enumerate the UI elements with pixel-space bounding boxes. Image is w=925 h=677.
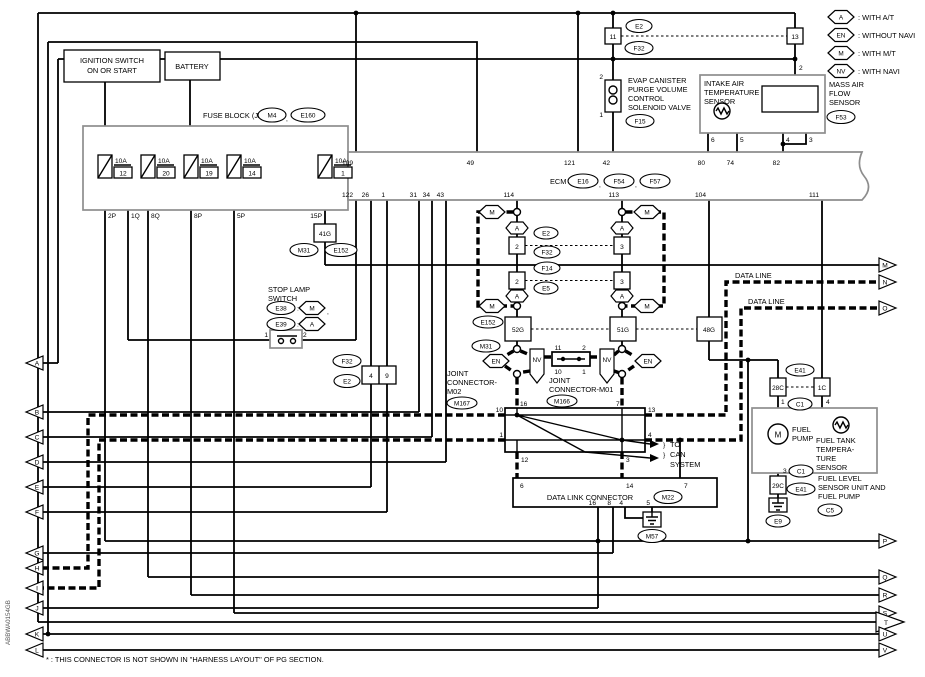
ecm-pin-113: 113	[608, 192, 619, 199]
tank-name-2: TEMPERA-	[816, 445, 855, 454]
connector-e2-chain: E2	[542, 231, 550, 238]
jc2-pin-3: 3	[626, 457, 630, 464]
arrow-left-d: D	[26, 455, 43, 469]
jc2-pin-4: 4	[648, 432, 652, 439]
arrow-left-j: J	[26, 601, 43, 615]
can-chain-right: M M A A 3 3 51G 48G EN NV	[531, 206, 722, 384]
jc2-name-2: CONNECTOR-	[447, 378, 497, 387]
badge-en: EN	[492, 359, 501, 366]
jc2-pin-12: 12	[521, 457, 529, 464]
svg-text:I: I	[36, 586, 38, 593]
evap-name-4: SOLENOID VALVE	[628, 103, 691, 112]
maf-name-2: FLOW	[829, 89, 850, 98]
arrow-left-e: E	[26, 480, 43, 494]
connector-e152-chain: E152	[481, 320, 496, 327]
inline-pin-4: 4	[369, 373, 373, 380]
svg-text:K: K	[35, 632, 40, 639]
arrow-right-r: R	[879, 588, 896, 602]
legend-text-en: : WITHOUT NAVI	[858, 31, 915, 40]
ground-m57: M57	[638, 512, 666, 543]
jc1-pin-1: 1	[582, 369, 586, 376]
arrow-left-f: F	[26, 505, 43, 519]
evap-name-3: CONTROL	[628, 94, 664, 103]
fuel-pump-name-1: FUEL	[792, 425, 811, 434]
arrow-left-c: C	[26, 430, 43, 444]
badge-nv: NV	[603, 357, 613, 364]
dlc-pin-6: 6	[520, 483, 524, 490]
svg-text:M: M	[775, 431, 782, 440]
arrow-left-g: G	[26, 546, 43, 560]
fuel-unit-name-3: FUEL PUMP	[818, 492, 860, 501]
svg-text:T: T	[884, 620, 888, 627]
ignition-label-1: IGNITION SWITCH	[80, 56, 144, 65]
iat-name-2: TEMPERATURE	[704, 88, 759, 97]
svg-text:Q: Q	[882, 575, 887, 582]
pin-1q: 1Q	[131, 213, 140, 220]
colon: :	[297, 306, 299, 313]
ecm-pin-109: 109	[342, 160, 353, 167]
ecm-pin-34: 34	[423, 192, 431, 199]
ecm-pin-74: 74	[727, 160, 735, 167]
legend-badge-en: EN	[837, 33, 846, 40]
ecm-pin-80: 80	[698, 160, 706, 167]
svg-text:14: 14	[248, 171, 256, 178]
jc2-pin-7: 7	[616, 401, 620, 408]
jc2-pin-10: 10	[496, 407, 504, 414]
connector-1c: 1C	[818, 385, 827, 392]
arrow-left-i: I	[26, 581, 43, 595]
svg-text:G: G	[34, 551, 39, 558]
svg-text:J: J	[35, 606, 38, 613]
connector-28c: 28C	[772, 385, 784, 392]
jc1-pin-10: 10	[554, 369, 562, 376]
svg-text:L: L	[35, 648, 39, 655]
connector-m22: M22	[662, 495, 675, 502]
fuel-pin-4: 4	[826, 399, 830, 406]
pin-2p: 2P	[108, 213, 117, 220]
legend-badge-nv: NV	[837, 69, 847, 76]
wiring-diagram: IGNITION SWITCH ON OR START BATTERY FUSE…	[0, 0, 925, 677]
badge-m: M	[489, 304, 494, 311]
connector-e5-chain: E5	[542, 286, 550, 293]
legend-text-a: : WITH A/T	[858, 13, 895, 22]
connector-f15: F15	[634, 119, 645, 126]
svg-text:E: E	[35, 485, 40, 492]
dlc-pin-16: 16	[589, 500, 597, 507]
can-line-3: SYSTEM	[670, 460, 700, 469]
jumper-pin-11: 11	[610, 34, 617, 41]
svg-text:H: H	[35, 566, 40, 573]
svg-text:10A: 10A	[244, 158, 256, 165]
connector-c1-bot: C1	[797, 469, 806, 476]
data-line-label-2: DATA LINE	[748, 297, 785, 306]
footnote: * : THIS CONNECTOR IS NOT SHOWN IN "HARN…	[46, 655, 324, 664]
wiring-diagram-page: IGNITION SWITCH ON OR START BATTERY FUSE…	[0, 0, 925, 677]
legend-text-nv: : WITH NAVI	[858, 67, 900, 76]
connector-c1-top: C1	[796, 402, 805, 409]
arrow-left-h: H	[26, 561, 43, 575]
maf-name-1: MASS AIR	[829, 80, 864, 89]
chain-box-3b: 3	[620, 279, 624, 286]
svg-text:A: A	[35, 361, 40, 368]
connector-e16: E16	[577, 179, 589, 186]
comma: ,	[286, 116, 288, 123]
evap-pin-2: 2	[599, 74, 603, 81]
ecm-pin-82: 82	[773, 160, 781, 167]
ecm-pin-42: 42	[603, 160, 611, 167]
jc2-pin-16: 16	[520, 401, 528, 408]
pin-8p: 8P	[194, 213, 203, 220]
arrow-right-p: P	[879, 534, 896, 548]
legend-badge-m: M	[838, 51, 843, 58]
connector-m4: M4	[268, 113, 277, 120]
evap-name-1: EVAP CANISTER	[628, 76, 686, 85]
svg-text:V: V	[883, 648, 888, 655]
ecm-pin-1: 1	[381, 192, 385, 199]
comma: ,	[599, 182, 601, 189]
svg-text:1: 1	[341, 171, 345, 178]
connector-51g: 51G	[617, 327, 629, 334]
badge-en: EN	[644, 359, 653, 366]
tank-name-3: TURE	[816, 454, 836, 463]
doc-code: ABBWA0154GB	[5, 600, 12, 645]
can-line-2: CAN	[670, 450, 686, 459]
pin-5p: 5P	[237, 213, 246, 220]
jumper-pin-13: 13	[791, 34, 799, 41]
ecm-label: ECM	[550, 177, 566, 186]
svg-text:D: D	[35, 460, 40, 467]
connector-41g: 41G	[319, 231, 331, 238]
jc2-pin-1: 1	[499, 432, 503, 439]
connector-f57: F57	[649, 179, 660, 186]
battery-box: BATTERY	[165, 52, 220, 80]
legend: A : WITH A/T EN : WITHOUT NAVI M : WITH …	[828, 11, 915, 78]
evap-name-2: PURGE VOLUME	[628, 85, 688, 94]
arrow-right-n: N	[879, 275, 896, 289]
jc2-name-3: M02	[447, 387, 461, 396]
badge-m: M	[489, 210, 494, 217]
svg-text:10A: 10A	[115, 158, 127, 165]
fuel-pin-3: 3	[783, 468, 787, 475]
arrow-left-a: A	[26, 356, 43, 370]
ecm-pin-26: 26	[362, 192, 370, 199]
connector-f32-inline: F32	[341, 359, 352, 366]
connector-m57: M57	[646, 534, 659, 541]
arrow-left-b: B	[26, 405, 43, 419]
badge-a: A	[620, 294, 625, 301]
connector-e38: E38	[275, 306, 287, 313]
connector-e2-inline: E2	[343, 379, 351, 386]
svg-text:10A: 10A	[158, 158, 170, 165]
legend-badge-a: A	[839, 15, 844, 22]
ecm-pin-31: 31	[410, 192, 418, 199]
connector-m31-chain: M31	[480, 344, 493, 351]
svg-text:10A: 10A	[201, 158, 213, 165]
ecm-pin-121: 121	[564, 160, 575, 167]
badge-a: A	[515, 226, 520, 233]
connector-f32-chain: F32	[541, 250, 552, 257]
comma: ,	[635, 182, 637, 189]
can-line-1: TO	[670, 440, 680, 449]
evap-pin-1: 1	[599, 112, 603, 119]
battery-label: BATTERY	[175, 62, 208, 71]
connector-m31: M31	[298, 248, 311, 255]
jc1-pin-2: 2	[582, 345, 586, 352]
svg-text:U: U	[883, 632, 888, 639]
svg-text:20: 20	[162, 171, 170, 178]
svg-text:M: M	[882, 263, 888, 270]
dlc-pin-7: 7	[684, 483, 688, 490]
arrow-right-q: Q	[879, 570, 896, 584]
connector-e41-top: E41	[794, 368, 806, 375]
offpage-arrows-right: M N O P Q R S T U V	[876, 258, 904, 657]
pin-15p: 15P	[310, 213, 322, 220]
fuel-unit-name-2: SENSOR UNIT AND	[818, 483, 886, 492]
connector-f54: F54	[613, 179, 624, 186]
chain-box-2b: 2	[515, 279, 519, 286]
legend-text-m: : WITH M/T	[858, 49, 896, 58]
brace: }	[663, 442, 666, 449]
arrow-right-m: M	[879, 258, 896, 272]
jc2-pin-13: 13	[648, 407, 656, 414]
tank-name-1: FUEL TANK	[816, 436, 856, 445]
data-line-label-1: DATA LINE	[735, 271, 772, 280]
ground-e9: E9	[766, 498, 790, 527]
arrow-left-l: L	[26, 643, 43, 657]
connector-48g: 48G	[703, 327, 715, 334]
svg-text:P: P	[883, 539, 888, 546]
badge-a: A	[620, 226, 625, 233]
iat-name-1: INTAKE AIR	[704, 79, 744, 88]
offpage-arrows-left: A B C D E F G H I J K L	[26, 356, 43, 657]
arrow-right-u: U	[879, 627, 896, 641]
jc2-name-1: JOINT	[447, 369, 469, 378]
jc1-name-1: JOINT	[549, 376, 571, 385]
jc1-pin-11: 11	[555, 345, 562, 352]
sensor-pin-3: 3	[809, 137, 813, 144]
dlc-pin-14: 14	[626, 483, 634, 490]
connector-f53: F53	[835, 115, 846, 122]
fuel-unit-name-1: FUEL LEVEL	[818, 474, 862, 483]
switch-pin-2: 2	[303, 332, 307, 339]
ecm-pin-43: 43	[437, 192, 445, 199]
arrow-right-o: O	[879, 301, 896, 315]
svg-text:O: O	[882, 306, 887, 313]
svg-text:N: N	[883, 280, 888, 287]
badge-m: M	[644, 304, 649, 311]
connector-m166: M166	[554, 399, 570, 406]
data-link-connector: 6 14 7 DATA LINK CONNECTOR M22 16 8 4 5 …	[513, 478, 717, 543]
ecm-pin-49: 49	[467, 160, 475, 167]
switch-pin-1: 1	[264, 332, 268, 339]
stop-lamp-name-1: STOP LAMP	[268, 285, 310, 294]
top-jumper-e2-f32: 11 13 E2 F32 2	[605, 20, 803, 73]
connector-m167: M167	[454, 401, 470, 408]
ecm-pin-114: 114	[503, 192, 514, 199]
arrow-left-k: K	[26, 627, 43, 641]
fuel-pin-1: 1	[781, 399, 785, 406]
badge-m: M	[644, 210, 649, 217]
dlc-pin-4: 4	[619, 500, 623, 507]
tank-name-4: SENSOR	[816, 463, 847, 472]
ignition-switch-box: IGNITION SWITCH ON OR START	[64, 50, 160, 82]
svg-text:12: 12	[119, 171, 127, 178]
fuel-pump-name-2: PUMP	[792, 434, 813, 443]
chain-box-2a: 2	[515, 244, 519, 251]
dlc-pin-8: 8	[607, 500, 611, 507]
connector-e39: E39	[275, 322, 287, 329]
to-can-system-note: } TO } CAN SYSTEM	[650, 440, 700, 469]
connector-c5: C5	[826, 508, 835, 515]
sensor-pin-5: 5	[740, 137, 744, 144]
svg-text:B: B	[35, 410, 40, 417]
comma: ,	[327, 309, 329, 316]
sensor-pin-4: 4	[786, 137, 790, 144]
svg-text:C: C	[35, 435, 40, 442]
dlc-pin-5: 5	[646, 500, 650, 507]
jc1-name-2: CONNECTOR-M01	[549, 385, 613, 394]
pin-8q: 8Q	[151, 213, 160, 220]
connector-f14-chain: F14	[541, 266, 552, 273]
connector-f32-top: F32	[633, 46, 644, 53]
connector-e41-bot: E41	[795, 487, 807, 494]
ignition-label-2: ON OR START	[87, 66, 137, 75]
connector-e2-top: E2	[635, 24, 643, 31]
svg-text:R: R	[883, 593, 888, 600]
maf-name-3: SENSOR	[829, 98, 860, 107]
ecm-pin-104: 104	[695, 192, 706, 199]
ecm-pin-111: 111	[809, 192, 819, 199]
svg-text:19: 19	[205, 171, 213, 178]
stop-lamp-switch-outline	[270, 330, 302, 348]
maf-pin-2: 2	[799, 65, 803, 72]
colon: :	[297, 322, 299, 329]
arrow-right-v: V	[879, 643, 896, 657]
badge-m-stop: M	[309, 306, 314, 313]
connector-e160: E160	[301, 113, 316, 120]
connector-52g: 52G	[512, 327, 524, 334]
connector-e9: E9	[774, 519, 782, 526]
svg-text:F: F	[35, 510, 39, 517]
sensor-pin-6: 6	[711, 137, 715, 144]
badge-nv: NV	[533, 357, 543, 364]
ecm-pin-122: 122	[342, 192, 353, 199]
chain-box-3a: 3	[620, 244, 624, 251]
badge-a: A	[515, 294, 520, 301]
connector-29c: 29C	[772, 483, 784, 490]
connector-e152: E152	[334, 248, 349, 255]
badge-a-stop: A	[310, 322, 315, 329]
brace: }	[663, 452, 666, 459]
inline-pin-9: 9	[385, 373, 389, 380]
